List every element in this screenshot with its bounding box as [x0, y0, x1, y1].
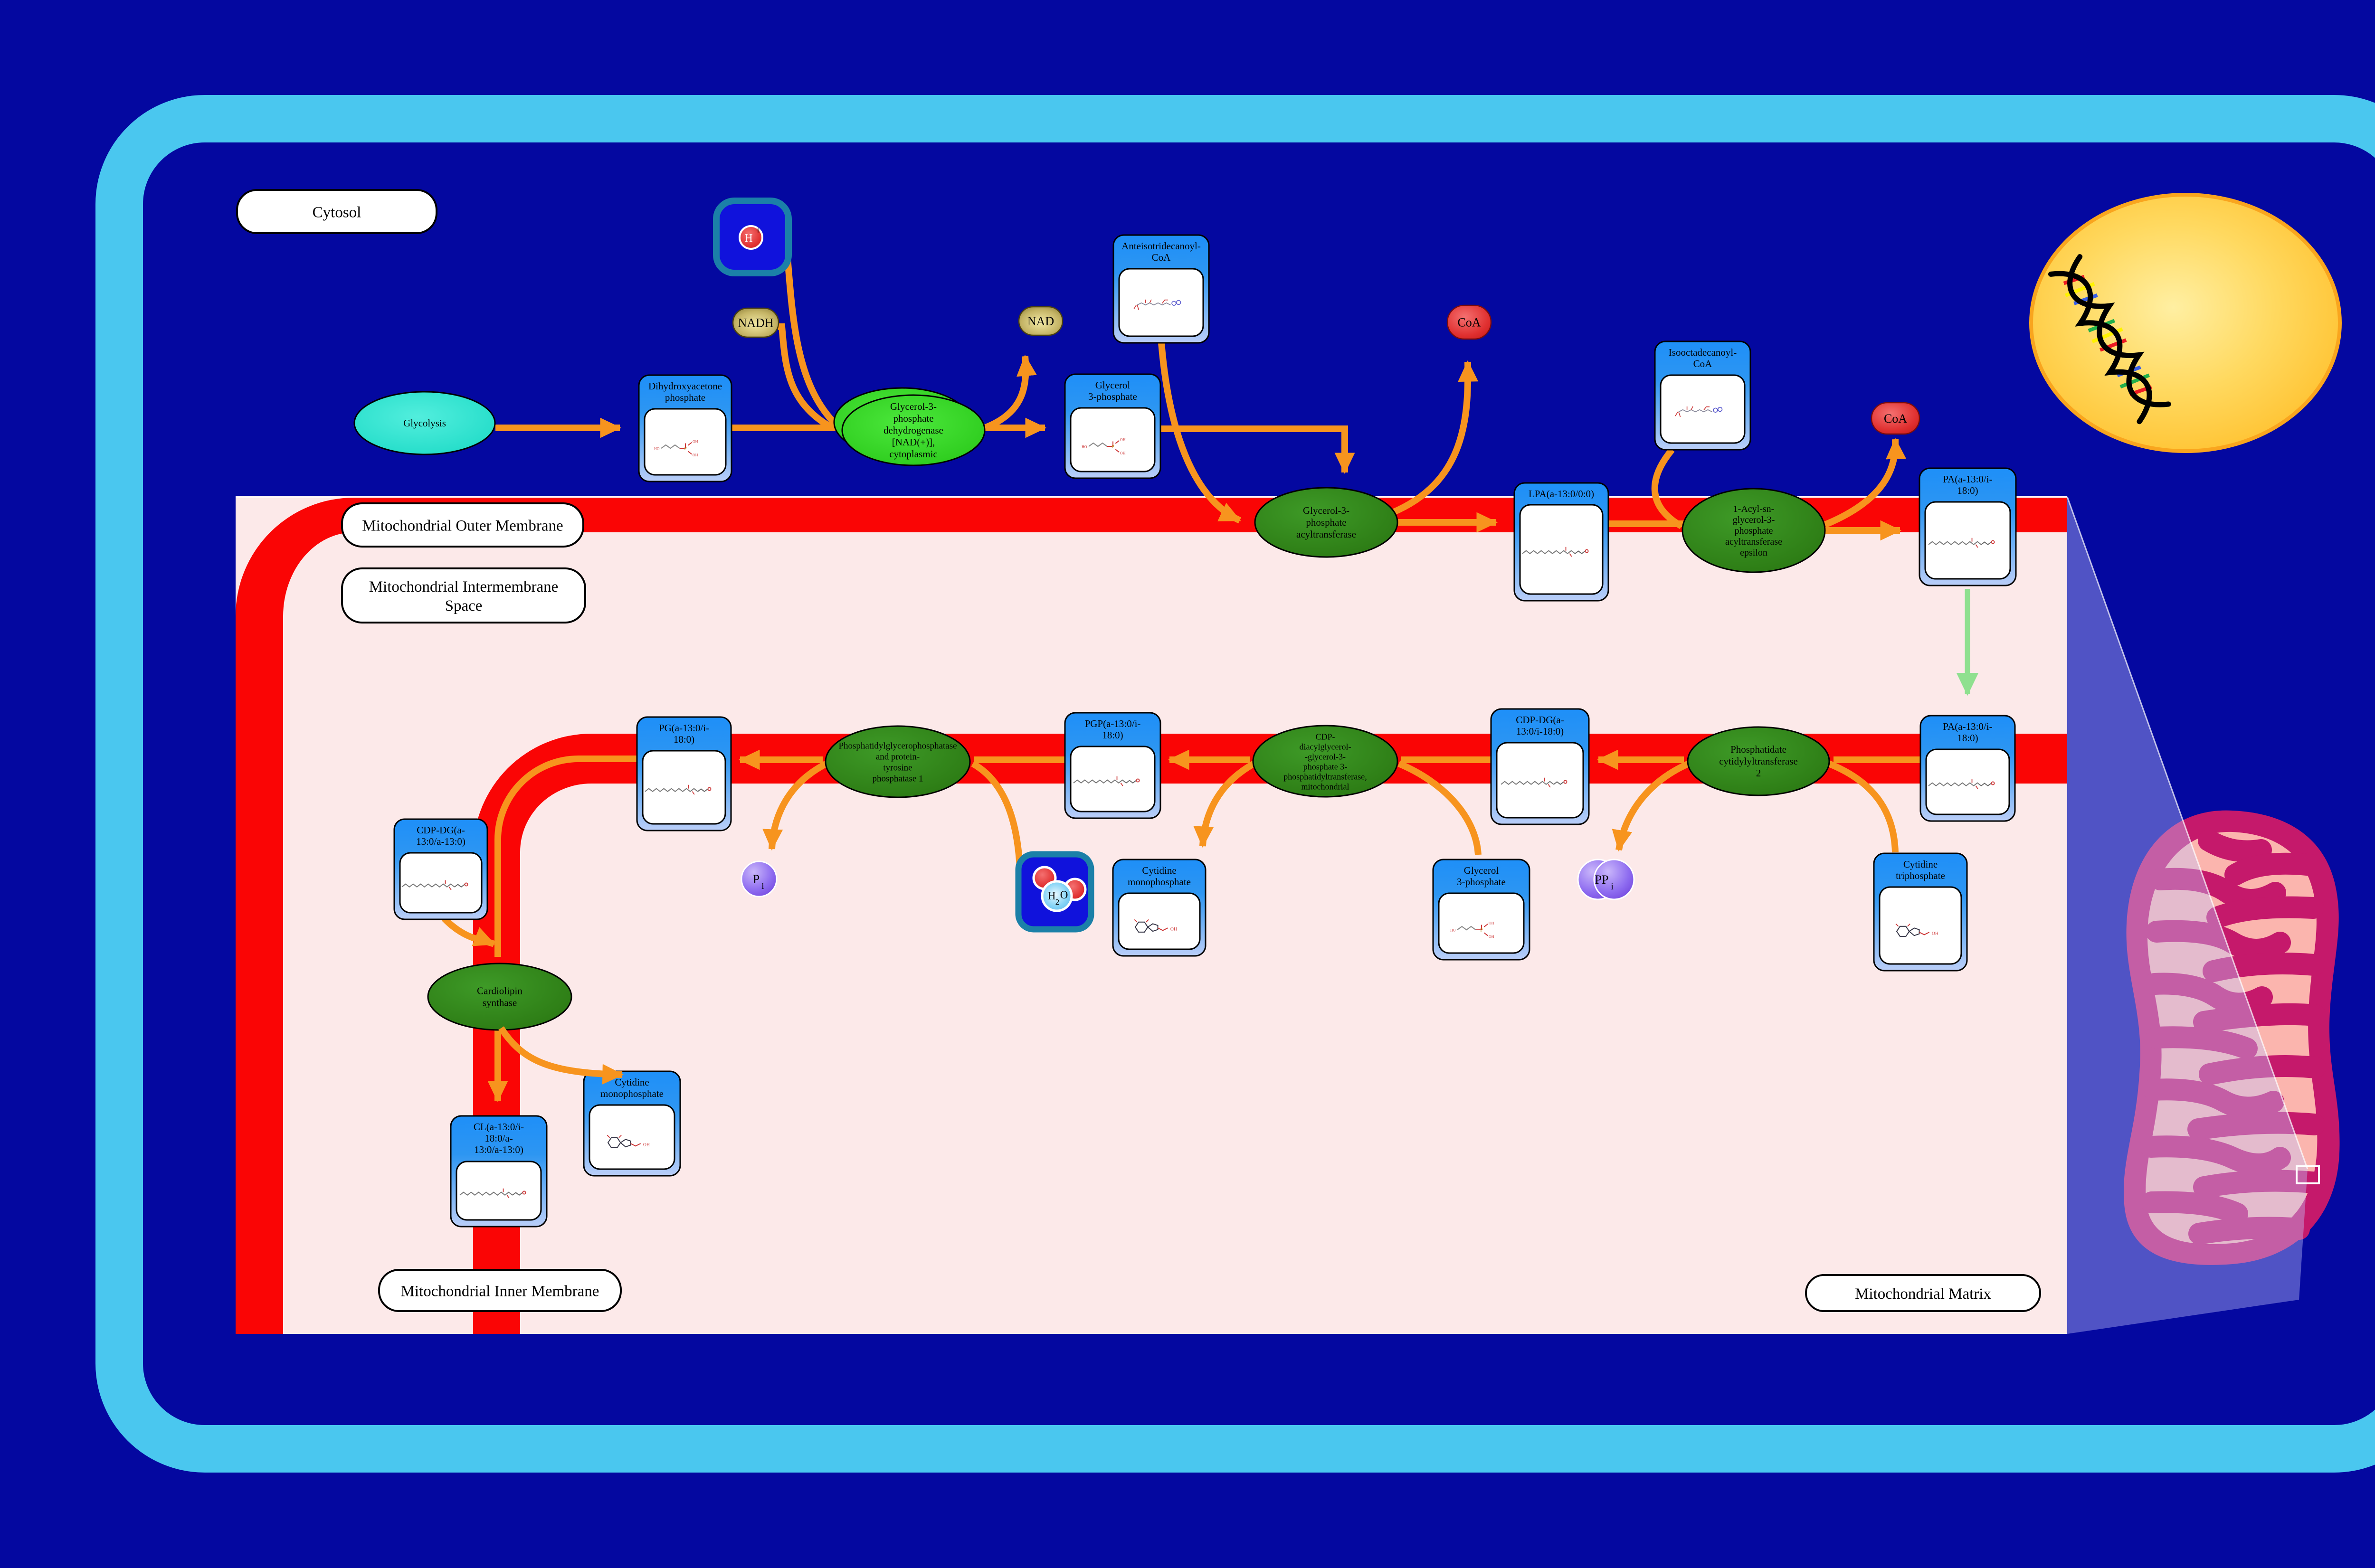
svg-text:Mitochondrial Inner Membrane: Mitochondrial Inner Membrane — [401, 1283, 599, 1300]
svg-text:H: H — [1048, 890, 1056, 902]
svg-text:CDP-DG(a-13:0/i-18:0): CDP-DG(a-13:0/i-18:0) — [1516, 714, 1564, 737]
svg-text:H: H — [744, 232, 752, 245]
svg-text:Glycolysis: Glycolysis — [403, 417, 446, 429]
svg-text:LPA(a-13:0/0:0): LPA(a-13:0/0:0) — [1529, 488, 1594, 500]
svg-text:NAD: NAD — [1027, 314, 1054, 328]
svg-text:O: O — [1060, 889, 1068, 901]
svg-text:+: + — [755, 224, 761, 236]
svg-text:2: 2 — [1055, 897, 1060, 907]
svg-text:PP: PP — [1595, 873, 1609, 887]
svg-text:Cardiolipinsynthase: Cardiolipinsynthase — [477, 985, 522, 1009]
svg-text:Cytosol: Cytosol — [313, 204, 361, 221]
svg-text:Mitochondrial Outer Membrane: Mitochondrial Outer Membrane — [362, 518, 563, 535]
svg-text:i: i — [1611, 881, 1614, 892]
svg-text:i: i — [761, 881, 764, 891]
svg-text:Glycerol3-phosphate: Glycerol3-phosphate — [1457, 865, 1506, 888]
svg-text:Mitochondrial Matrix: Mitochondrial Matrix — [1855, 1285, 1991, 1303]
svg-text:Glycerol-3-phosphatedehydrogen: Glycerol-3-phosphatedehydrogenase[NAD(+)… — [883, 401, 943, 460]
svg-text:CoA: CoA — [1884, 412, 1907, 425]
svg-text:Glycerol3-phosphate: Glycerol3-phosphate — [1088, 379, 1137, 402]
svg-text:CDP-DG(a-13:0/a-13:0): CDP-DG(a-13:0/a-13:0) — [416, 824, 465, 847]
svg-text:NADH: NADH — [738, 316, 773, 330]
svg-text:CoA: CoA — [1457, 316, 1481, 330]
svg-text:P: P — [753, 872, 760, 886]
